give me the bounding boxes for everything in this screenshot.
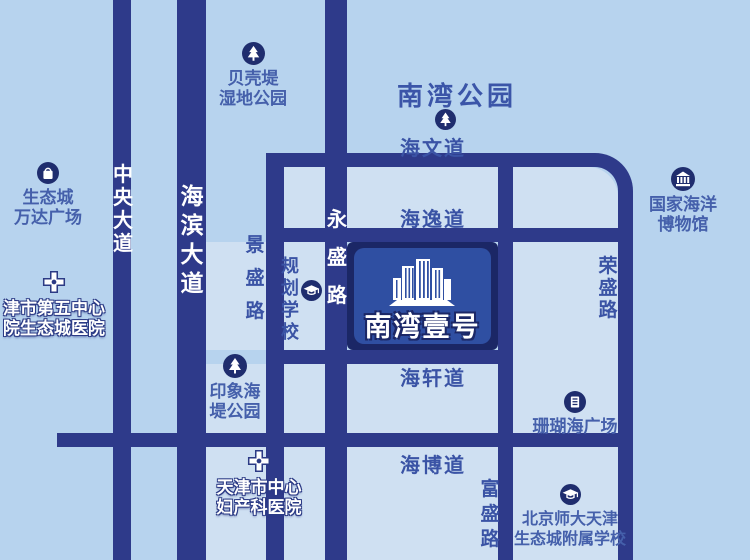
museum-icon (671, 167, 695, 191)
road-haixuan (266, 350, 513, 364)
road-haiwen-corner (566, 153, 633, 210)
poi-label-planned-school: 规划学校 (280, 256, 300, 344)
poi-planned-school-marker (301, 280, 322, 305)
road-label-haixuan: 海轩道 (400, 362, 466, 391)
road-label-jingsheng: 景盛路 (243, 229, 267, 328)
road-label-zhongyang-avenue: 中央大道 (111, 163, 135, 255)
road-label-haibo: 海博道 (400, 449, 466, 478)
poi-shanhuhai-plaza: 珊瑚海广场 (525, 391, 625, 437)
poi-wanda-plaza: 生态城 万达广场 (0, 162, 100, 228)
road-label-rongsheng: 荣盛路 (596, 255, 620, 321)
road-label-fusheng: 富盛路 (478, 477, 502, 552)
city-block (284, 167, 325, 228)
poi-nanwan-park-marker (435, 109, 456, 134)
hospital-cross-icon (41, 269, 67, 295)
school-cap-icon (301, 280, 322, 301)
road-label-haibin-avenue: 海滨大道 (179, 183, 205, 299)
road-label-haiyi: 海逸道 (400, 203, 466, 232)
park-icon (223, 354, 247, 378)
poi-bnu-tianjin-school: 北京师大天津 生态城附属学校 (512, 484, 628, 549)
poi-label-nanwan-park: 南湾公园 (397, 76, 517, 113)
mall-icon (37, 162, 59, 184)
plaza-icon (564, 391, 586, 413)
hospital-cross-icon (246, 448, 272, 474)
poi-beiketi-wetland-park: 贝壳堤 湿地公园 (203, 42, 303, 109)
project-location-map: 中央大道 海滨大道 永盛路 景盛路 荣盛路 富盛路 海文道 海逸道 海轩道 海博… (0, 0, 750, 560)
project-badge: 南湾壹号 (347, 242, 498, 350)
project-name: 南湾壹号 (354, 305, 491, 344)
school-cap-icon (560, 484, 581, 505)
buildings-icon (387, 254, 457, 310)
project-badge-panel: 南湾壹号 (354, 248, 491, 344)
poi-national-maritime-museum: 国家海洋 博物馆 (633, 167, 733, 235)
park-icon (242, 42, 265, 65)
city-block (284, 364, 325, 433)
park-icon (435, 109, 456, 130)
poi-yinxiang-seawall-park: 印象海 堤公园 (185, 354, 285, 422)
road-label-yongsheng: 永盛路 (325, 200, 349, 314)
poi-central-maternity-hospital: 天津市中心 妇产科医院 (209, 448, 309, 518)
poi-fifth-center-hospital: 津市第五中心 院生态城医院 (0, 269, 116, 339)
road-label-haiwen: 海文道 (400, 132, 466, 161)
